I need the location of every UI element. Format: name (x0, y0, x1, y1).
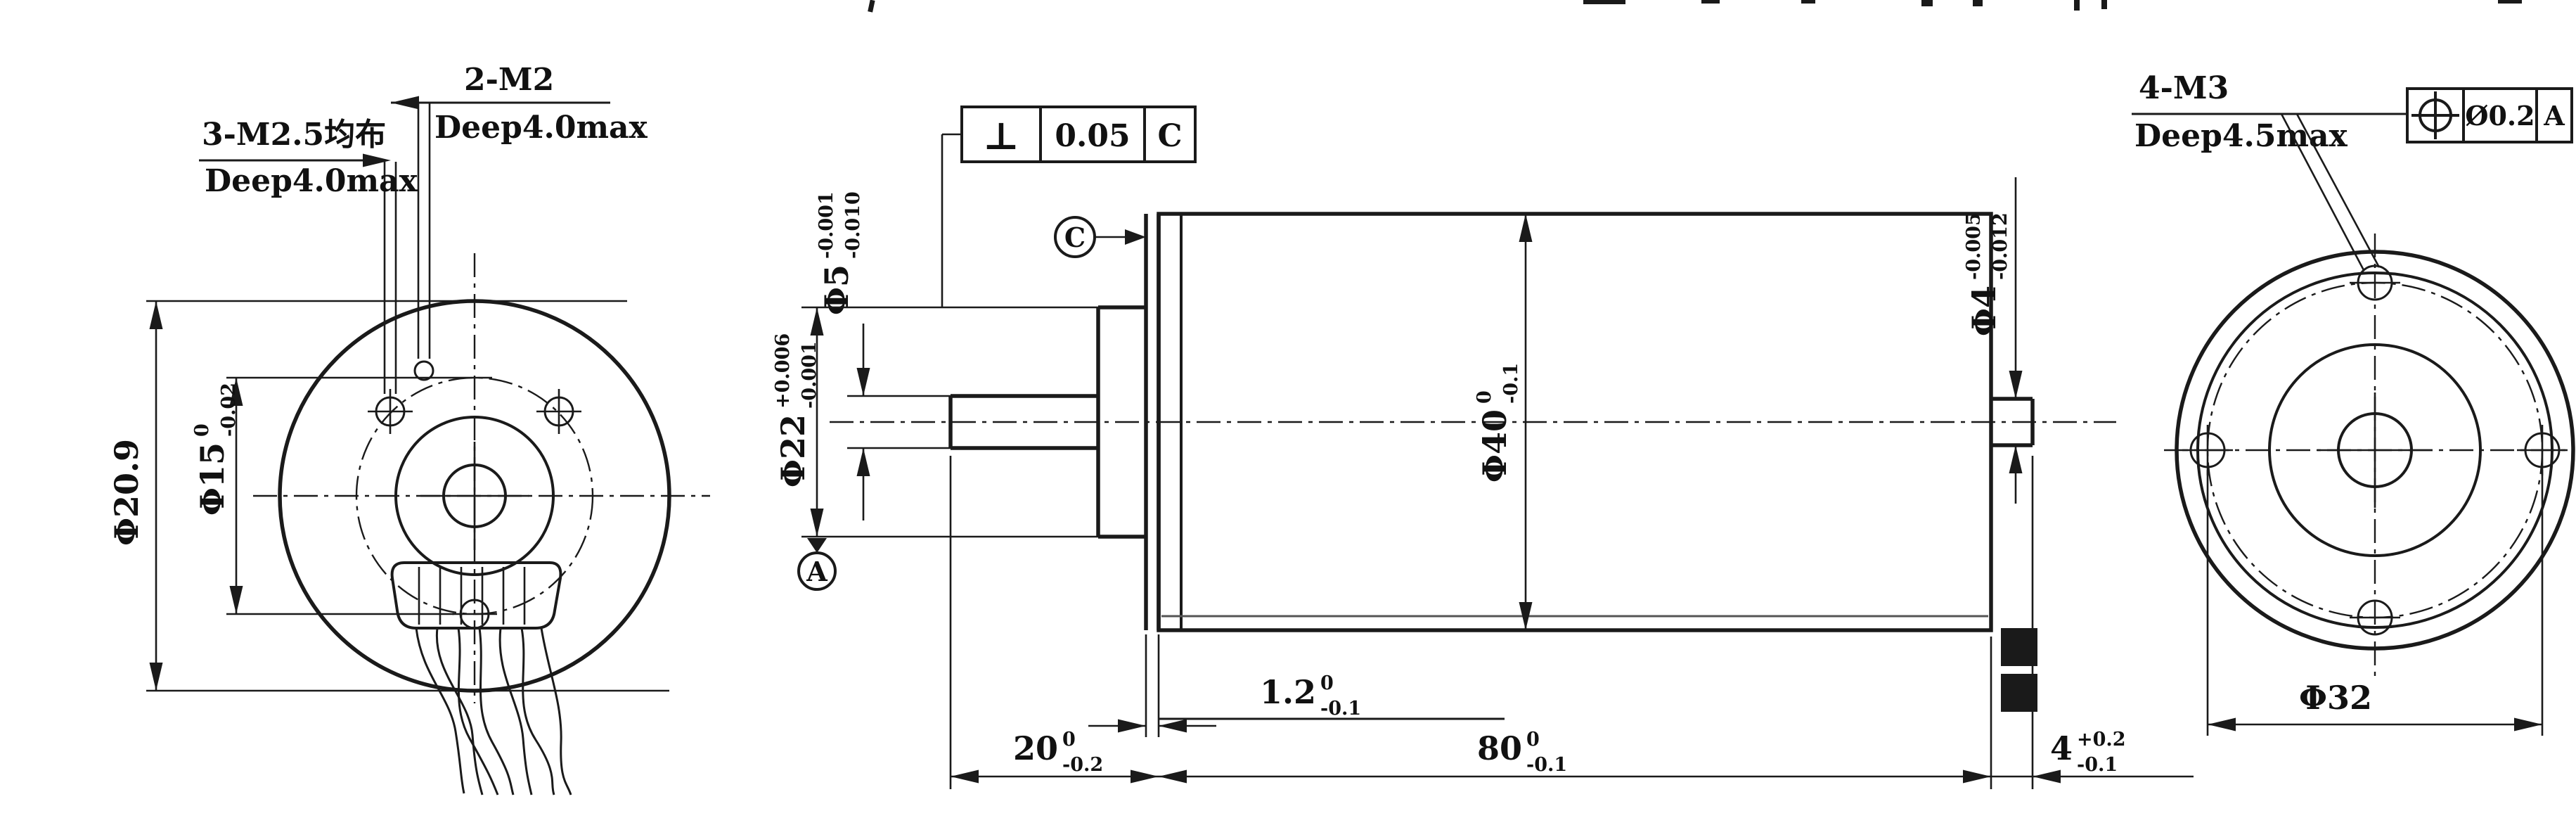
svg-text:+0.2: +0.2 (2077, 729, 2126, 750)
datum-c: C (1055, 217, 1146, 257)
engineering-drawing-sheet: Φ20.9 Φ15 0 -0.02 3-M2.5均布 Deep4.0max 2-… (0, 0, 2576, 837)
side-view: ⊥ 0.05 C C Φ5 -0.001 -0.010 (772, 107, 2194, 789)
m25-hole (368, 389, 413, 434)
dim-phi22-main: Φ22 (774, 414, 812, 487)
dim-phi40-main: Φ40 (1476, 409, 1514, 483)
dim-phi5-lower: -0.010 (842, 191, 864, 259)
dim-4: 4 +0.2 -0.1 (2050, 729, 2126, 776)
m2-callout-leaders (418, 103, 430, 359)
fcf-perp-datum: C (1157, 118, 1182, 154)
callout-m2-line1: 2-M2 (464, 62, 554, 98)
datum-a: A (799, 538, 835, 589)
fcf-pos-value: Ø0.2 (2465, 100, 2535, 132)
svg-text:0: 0 (1062, 729, 1076, 750)
callout-m3: 4-M3 Deep4.5max (2132, 70, 2407, 270)
perpendicularity-icon: ⊥ (983, 113, 1019, 158)
svg-text:-0.1: -0.1 (1526, 754, 1567, 776)
callout-m25-line2: Deep4.0max (205, 163, 418, 199)
fcf-perp-value: 0.05 (1055, 118, 1130, 154)
dim-phi40-upper: 0 (1474, 390, 1495, 404)
dim-1-2-main: 1.2 (1260, 673, 1316, 711)
fcf-position: Ø0.2 A (2407, 89, 2572, 142)
dim-phi4-upper: -0.005 (1963, 212, 1985, 280)
dim-phi15-lower: -0.02 (218, 383, 240, 437)
svg-text:0: 0 (1526, 729, 1540, 750)
cropped-text-fragments (868, 0, 2522, 13)
m3-hole (2517, 425, 2568, 475)
dim-phi15-upper: 0 (191, 423, 213, 437)
left-view: Φ20.9 Φ15 0 -0.02 3-M2.5均布 Deep4.0max 2-… (108, 62, 710, 795)
callout-m2-line2: Deep4.0max (434, 110, 648, 146)
dim-20: 20 0 -0.2 (1013, 729, 1103, 776)
position-tolerance-icon (2411, 91, 2459, 139)
dim-phi4-lower: -0.012 (1990, 212, 2011, 280)
dim-phi5: Φ5 -0.001 -0.010 (816, 191, 951, 520)
dim-phi32-text: Φ32 (2299, 679, 2372, 717)
dim-phi209-text: Φ20.9 (108, 439, 146, 546)
datum-a-label: A (806, 556, 827, 587)
dim-1-2: 1.2 0 -0.1 (1088, 634, 1505, 737)
dim-phi5-upper: -0.001 (816, 191, 837, 259)
callout-m25-line1: 3-M2.5均布 (202, 117, 386, 153)
motor-three-view-drawing: Φ20.9 Φ15 0 -0.02 3-M2.5均布 Deep4.0max 2-… (0, 0, 2576, 837)
dim-1-2-upper: 0 (1320, 672, 1334, 694)
callout-m3-line1: 4-M3 (2139, 70, 2229, 106)
dim-chain-bottom: 20 0 -0.2 80 0 -0.1 4 +0.2 -0.1 (951, 456, 2194, 789)
dim-phi22-lower: -0.001 (799, 341, 820, 409)
dim-phi40-lower: -0.1 (1500, 363, 1522, 404)
callout-m25: 3-M2.5均布 Deep4.0max (199, 117, 418, 199)
svg-text:-0.1: -0.1 (2077, 754, 2118, 776)
svg-text:4: 4 (2050, 729, 2073, 767)
dim-phi15-main: Φ15 (193, 442, 231, 516)
dim-1-2-lower: -0.1 (1320, 698, 1361, 720)
right-view: 4-M3 Deep4.5max Ø0.2 A Φ32 (2132, 70, 2573, 736)
datum-c-label: C (1064, 222, 1086, 253)
svg-text:80: 80 (1477, 729, 1522, 767)
m3-hole (2182, 425, 2233, 475)
dim-phi22-upper: +0.006 (772, 333, 794, 409)
m25-hole (536, 389, 581, 434)
dim-80: 80 0 -0.1 (1477, 729, 1567, 776)
svg-text:20: 20 (1013, 729, 1058, 767)
dim-phi4-main: Φ4 (1965, 286, 2003, 336)
svg-text:-0.2: -0.2 (1062, 754, 1103, 776)
fcf-pos-datum: A (2543, 100, 2565, 132)
